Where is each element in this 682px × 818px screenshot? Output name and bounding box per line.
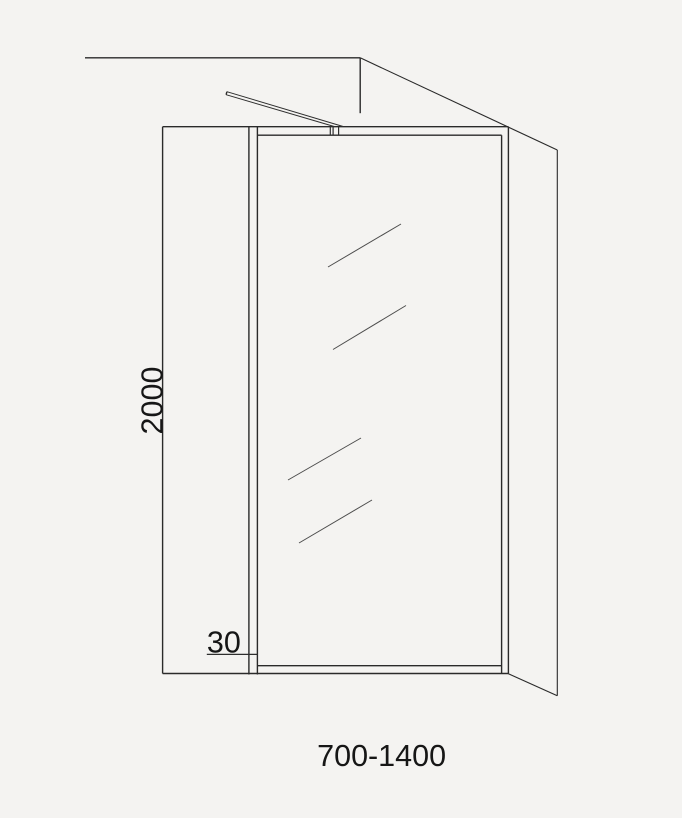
svg-text:700-1400: 700-1400: [317, 739, 446, 773]
svg-text:2000: 2000: [135, 367, 169, 435]
